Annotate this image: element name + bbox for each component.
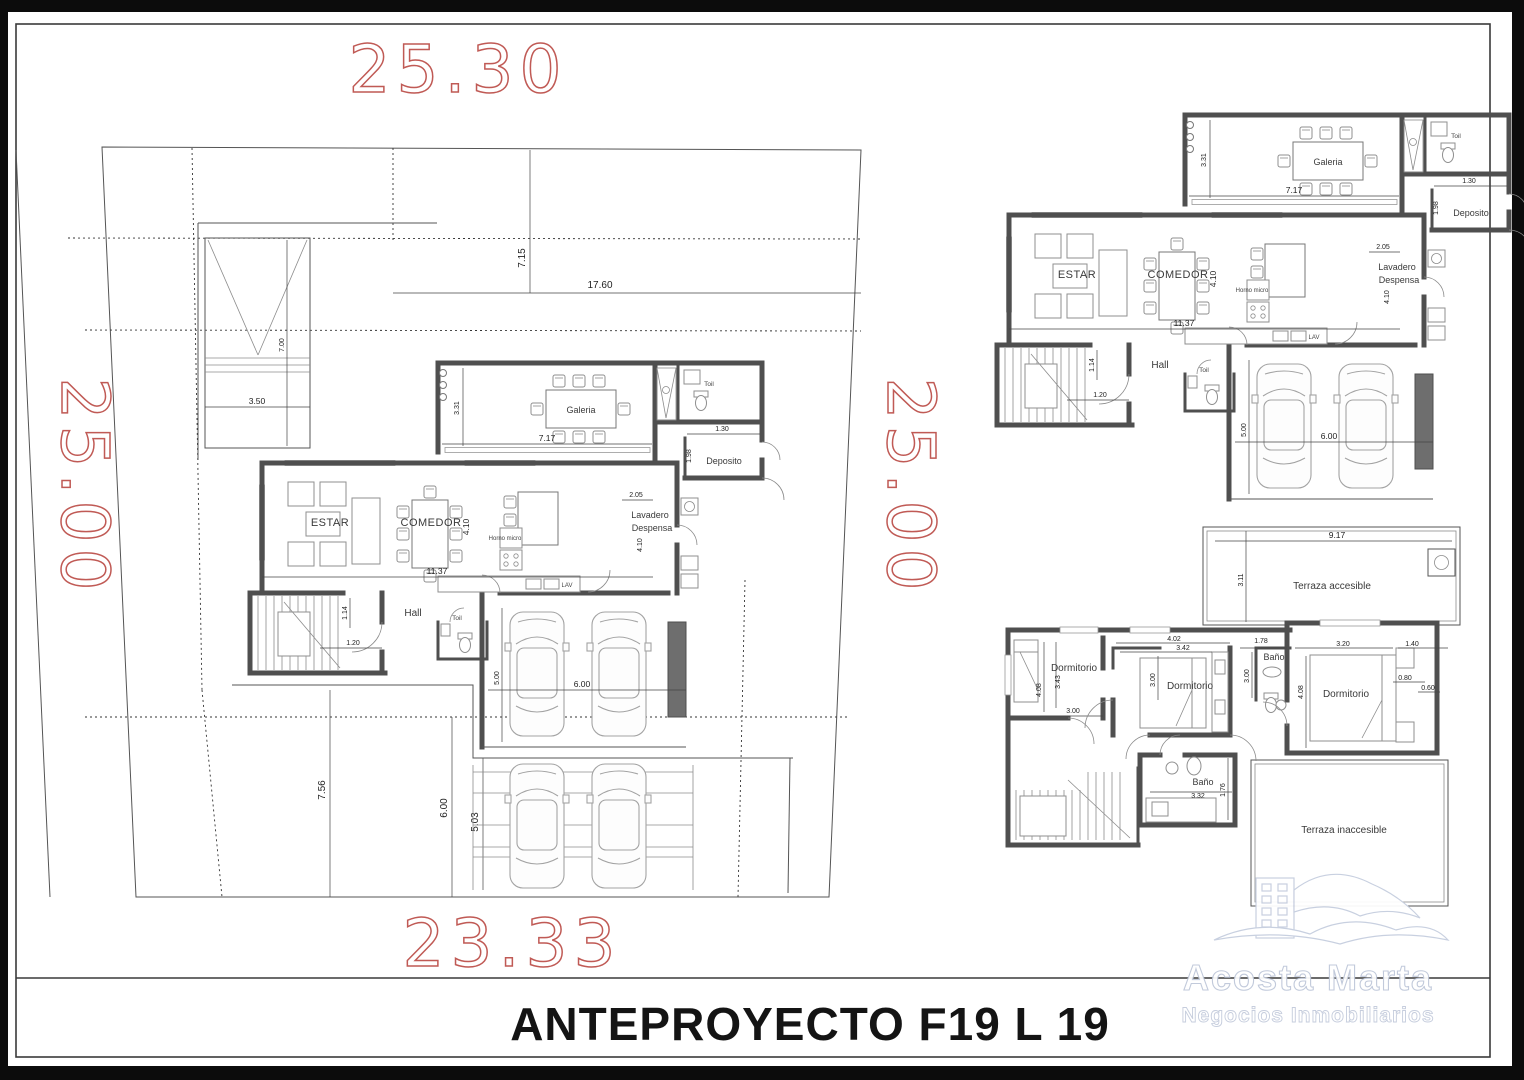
lot-dim-bottom: 23.33 [403, 905, 622, 982]
dim-front-setback: 7.15 [517, 248, 528, 268]
logo-name: Acosta Marta [1183, 957, 1433, 998]
sheet-title: ANTEPROYECTO F19 L 19 [510, 998, 1110, 1050]
lot-dim-left: 25.00 [46, 378, 123, 597]
dim-drive-length: 6.00 [439, 798, 450, 818]
parked-car-2 [587, 764, 651, 888]
dim-dorm3-ext: 1.40 [1405, 641, 1419, 648]
dim-bano2-width: 3.32 [1191, 793, 1205, 800]
dim-ramp-width: 3.50 [249, 396, 266, 406]
dim-dorm1-width: 3.00 [1066, 708, 1080, 715]
dim-back-yard: 7.56 [317, 780, 328, 800]
dim-dorm2-wall: 4.02 [1167, 636, 1181, 643]
label-terraza-accesible: Terraza accesible [1293, 581, 1371, 592]
label-dorm3: Dormitorio [1323, 689, 1370, 700]
dim-bano1-width: 1.78 [1254, 638, 1268, 645]
dim-dorm1-bed: 3.43 [1055, 675, 1062, 689]
lot-dim-top: 25.30 [349, 31, 568, 108]
lot-dim-right: 25.00 [872, 378, 949, 597]
floorplan-svg: 3.31 7.17 Toil 1.30 1.98 Deposito ESTAR … [0, 0, 1524, 1080]
dim-terraza-depth: 3.11 [1238, 573, 1245, 586]
dim-closet-depth: 3.00 [1244, 669, 1251, 683]
drawing-sheet: 3.31 7.17 Toil 1.30 1.98 Deposito ESTAR … [0, 0, 1524, 1080]
dim-drive-width: 5.03 [470, 812, 481, 832]
dim-terraza-width: 9.17 [1329, 530, 1346, 540]
logo-tagline: Negocios Inmobiliarios [1181, 1004, 1434, 1027]
dim-house-width: 17.60 [587, 280, 612, 291]
dim-dorm2-depth: 3.00 [1150, 673, 1157, 687]
dim-dorm3-edge: 0.60 [1421, 685, 1435, 692]
label-bano2: Baño [1192, 777, 1213, 787]
parked-car-1 [505, 764, 569, 888]
dim-dorm1-depth: 4.08 [1036, 683, 1043, 697]
dim-bano2-depth: 1.76 [1220, 783, 1227, 797]
dim-dorm3-depth: 4.08 [1298, 685, 1305, 699]
label-terraza-inaccesible: Terraza inaccesible [1301, 825, 1387, 836]
label-bano1: Baño [1263, 652, 1284, 662]
dim-dorm3-width: 3.20 [1336, 641, 1350, 648]
dim-ramp-length: 7.00 [279, 338, 286, 352]
label-dorm1: Dormitorio [1051, 663, 1098, 674]
label-dorm2: Dormitorio [1167, 681, 1214, 692]
dim-dorm2-width: 3.42 [1176, 645, 1190, 652]
dim-dorm3-shelf: 0.80 [1398, 675, 1412, 682]
